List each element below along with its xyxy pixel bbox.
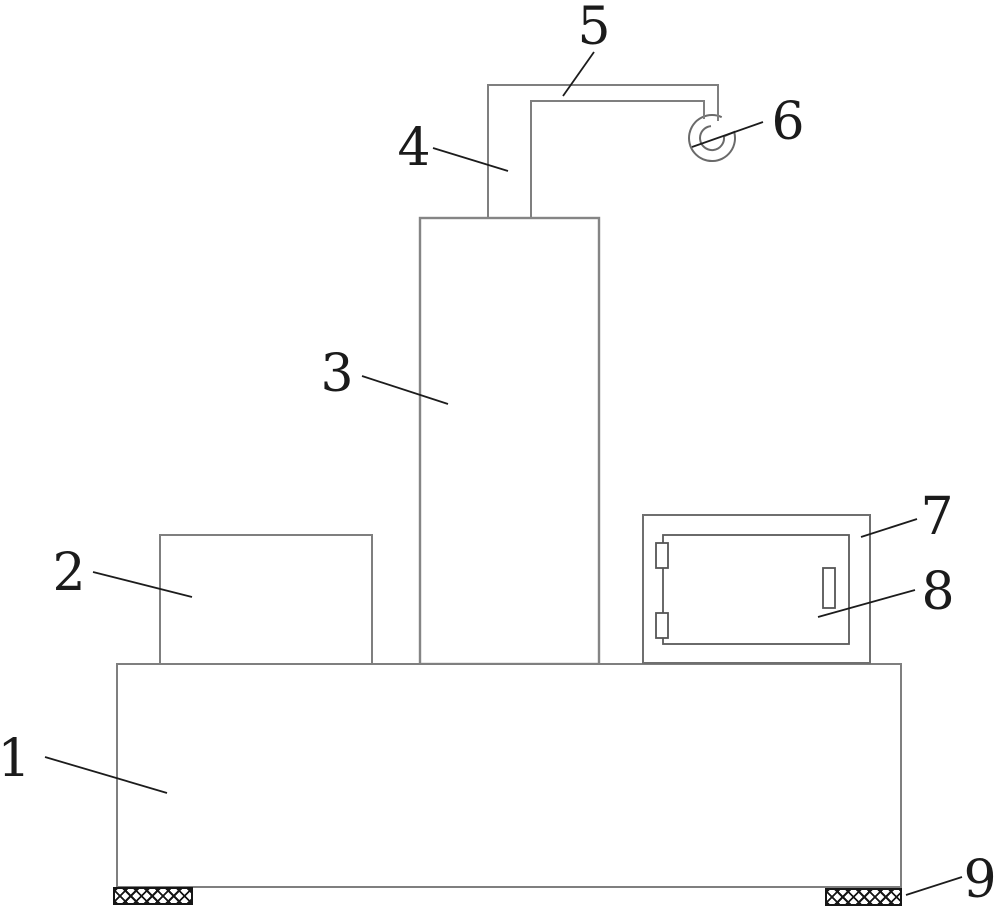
part-label-9: 9 — [963, 854, 996, 906]
hook-shape — [689, 115, 735, 161]
arm-outer-outline — [488, 85, 718, 218]
part-label-8: 8 — [921, 566, 954, 618]
leader-line-9 — [906, 877, 962, 895]
arm-inner-outline — [531, 101, 704, 218]
cabinet-door — [663, 535, 849, 644]
part-label-3: 3 — [320, 348, 353, 400]
door-hinge-top — [656, 543, 668, 568]
left-box — [160, 535, 372, 664]
part-label-5: 5 — [577, 1, 610, 53]
leader-line-5 — [563, 52, 594, 96]
part-label-4: 4 — [397, 122, 430, 174]
vertical-column — [420, 218, 599, 664]
drawing-layer — [0, 0, 1000, 914]
door-handle — [823, 568, 835, 608]
left-foot-pad — [113, 887, 193, 905]
leader-line-4 — [433, 148, 508, 171]
base-block — [117, 664, 901, 887]
door-hinge-bottom — [656, 613, 668, 638]
part-label-2: 2 — [52, 547, 85, 599]
right-foot-pad — [825, 888, 902, 906]
part-label-7: 7 — [920, 491, 953, 543]
part-label-6: 6 — [771, 96, 804, 148]
patent-figure: 1 2 3 4 5 6 7 8 9 — [0, 0, 1000, 914]
part-label-1: 1 — [0, 733, 31, 785]
